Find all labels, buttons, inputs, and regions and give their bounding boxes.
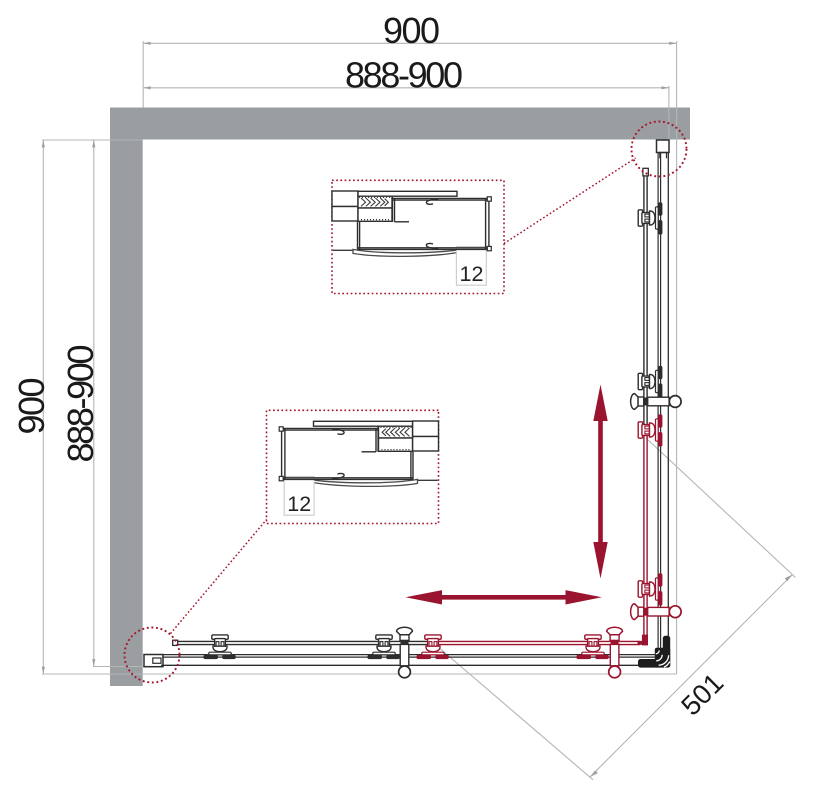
svg-text:12: 12 <box>287 492 311 516</box>
svg-text:888-900: 888-900 <box>345 54 463 95</box>
svg-text:900: 900 <box>11 378 52 435</box>
svg-text:888-900: 888-900 <box>60 345 101 463</box>
svg-text:900: 900 <box>383 10 440 51</box>
svg-text:12: 12 <box>460 262 484 286</box>
